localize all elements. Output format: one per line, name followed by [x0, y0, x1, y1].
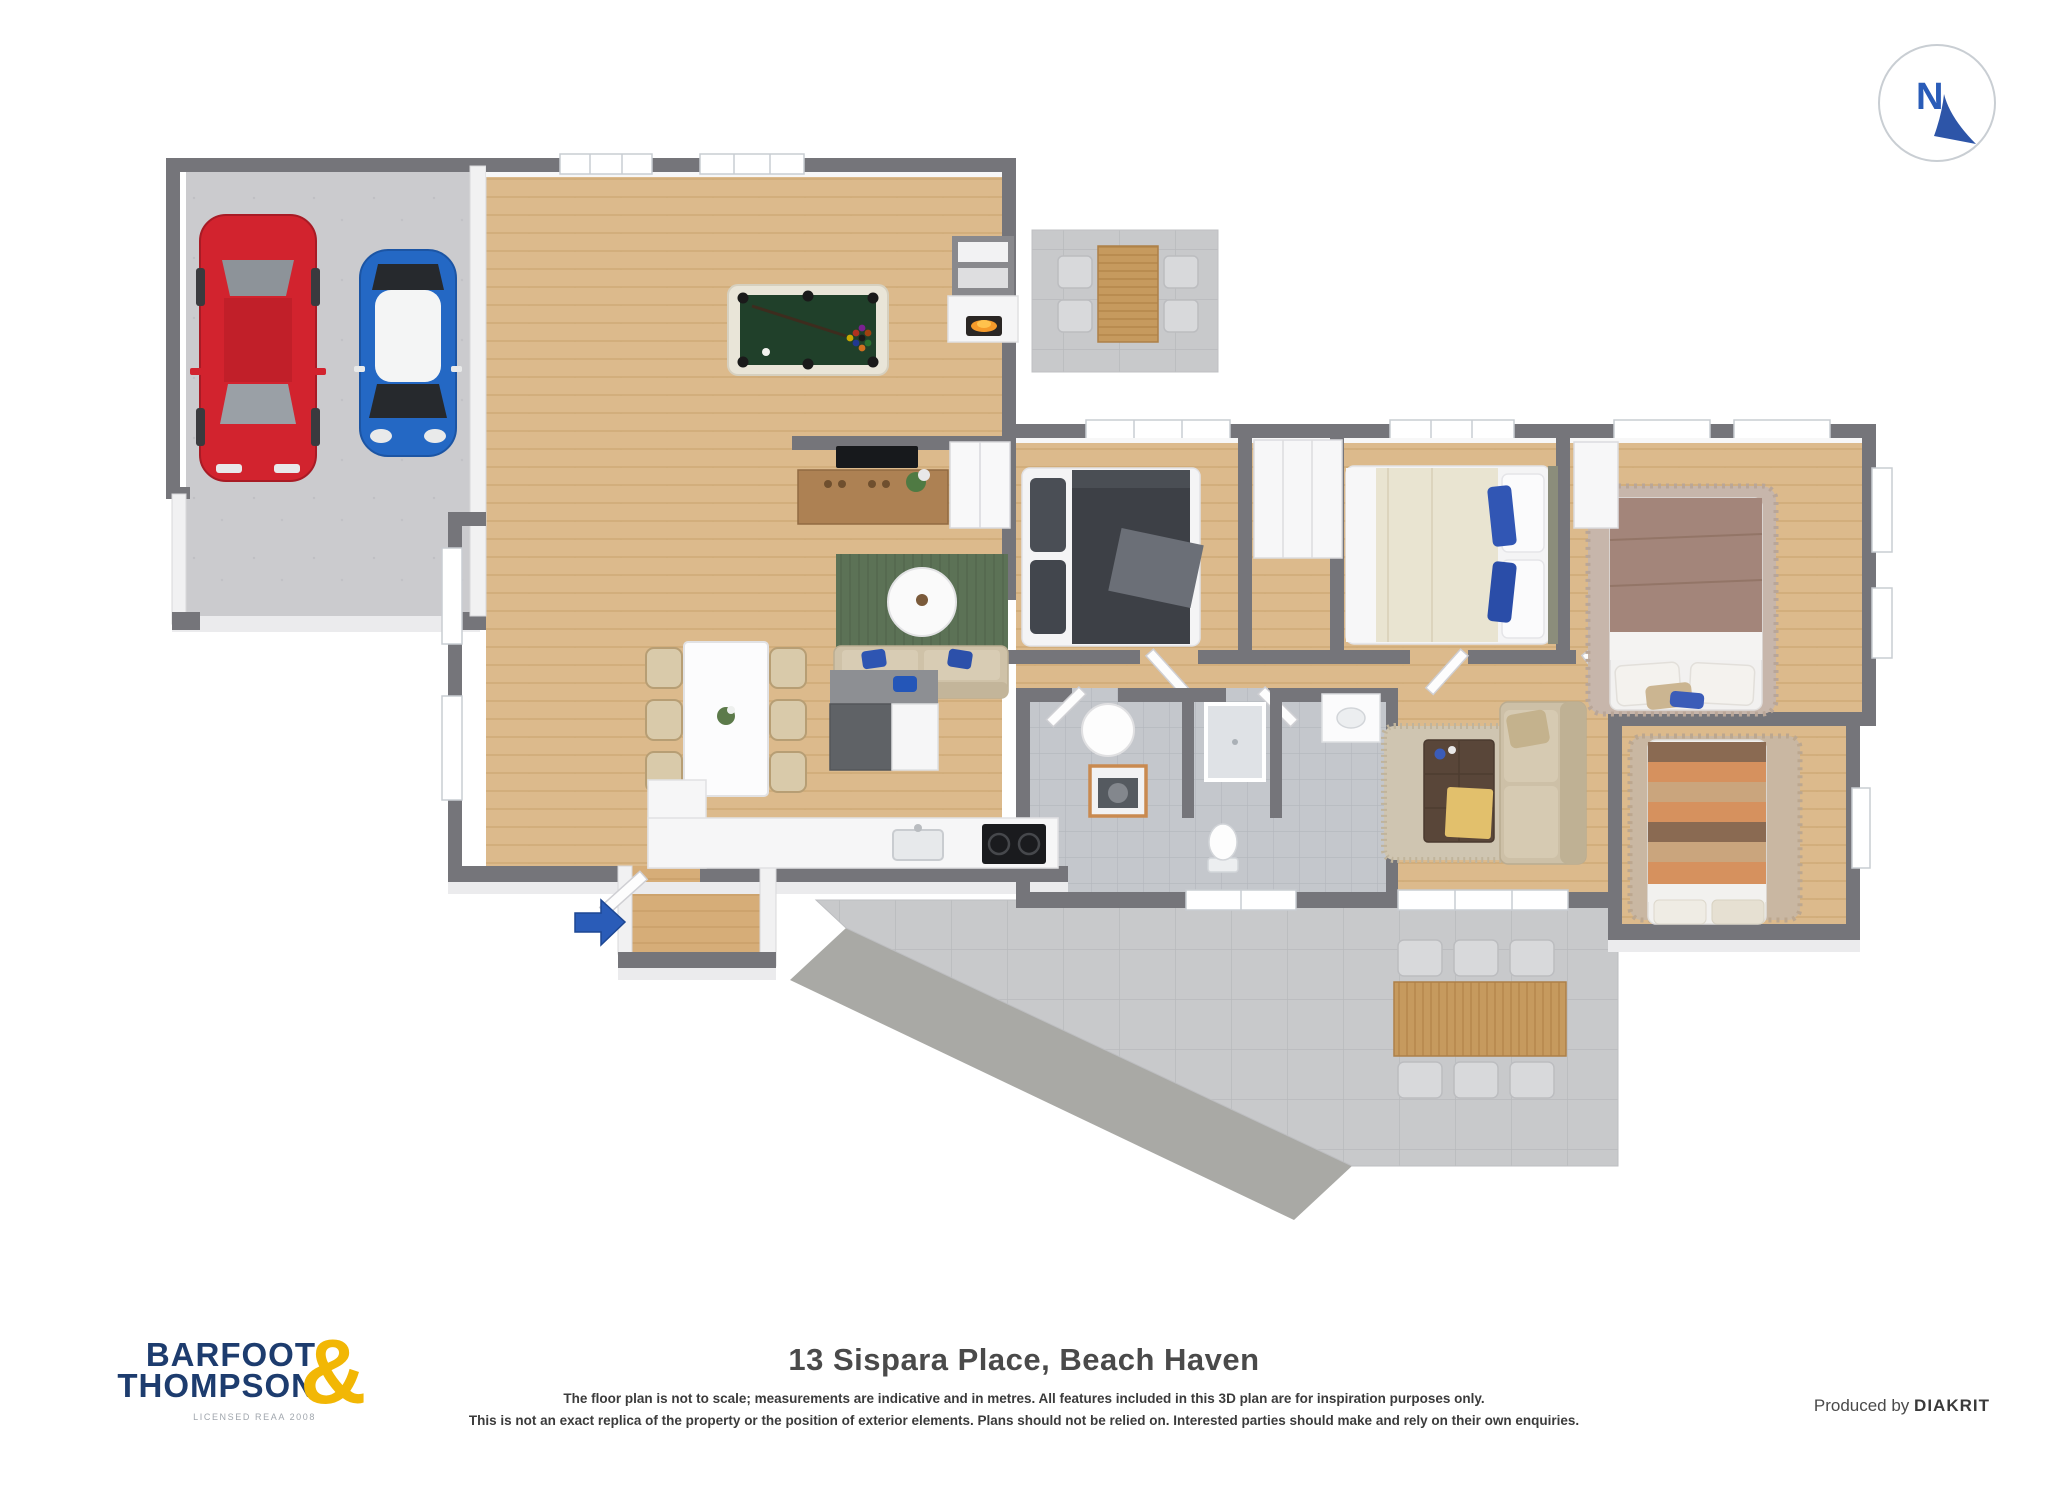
kitchen-sink — [893, 830, 943, 860]
outdoor-table-large — [1394, 982, 1566, 1056]
credit-prefix: Produced by — [1814, 1396, 1909, 1415]
wardrobe — [1574, 442, 1618, 528]
wall-tv — [836, 446, 918, 468]
fireplace — [948, 236, 1018, 342]
kitchen-island — [830, 670, 938, 770]
living-room-furniture — [1384, 702, 1586, 864]
laundry-tub — [1082, 704, 1134, 756]
page-title: 13 Sispara Place, Beach Haven — [0, 1342, 2048, 1378]
pool-table — [728, 285, 888, 375]
fridge — [830, 704, 892, 770]
producer-credit: Produced by DIAKRIT — [1814, 1396, 1990, 1416]
coffee-table — [1424, 740, 1494, 842]
bed-striped-duvet — [1630, 736, 1800, 924]
bed-dark-duvet — [1022, 468, 1204, 646]
red-car — [190, 215, 326, 481]
disclaimer-line-2: This is not an exact replica of the prop… — [0, 1410, 2048, 1432]
compass-arrow-icon — [1878, 44, 1996, 162]
second-bathroom — [1322, 694, 1380, 742]
disclaimer: The floor plan is not to scale; measurem… — [0, 1388, 2048, 1431]
dining-table — [684, 642, 768, 796]
cooktop — [982, 824, 1046, 864]
toilet — [1208, 824, 1238, 872]
couch — [1500, 702, 1586, 864]
round-side-table — [888, 568, 956, 636]
washing-machine — [1090, 766, 1146, 816]
patio-top — [1032, 230, 1218, 372]
kettle — [893, 676, 917, 692]
credit-brand: DIAKRIT — [1914, 1396, 1990, 1415]
disclaimer-line-1: The floor plan is not to scale; measurem… — [0, 1388, 2048, 1410]
patio-main — [790, 900, 1618, 1220]
wardrobe — [1254, 440, 1342, 558]
blue-mini-car — [354, 250, 462, 456]
floor-plan-image — [0, 0, 2048, 1494]
tv-sideboard — [798, 469, 948, 524]
bed-cream-duvet — [1346, 466, 1558, 644]
outdoor-table-small — [1098, 246, 1158, 342]
compass: N — [1878, 44, 1996, 162]
